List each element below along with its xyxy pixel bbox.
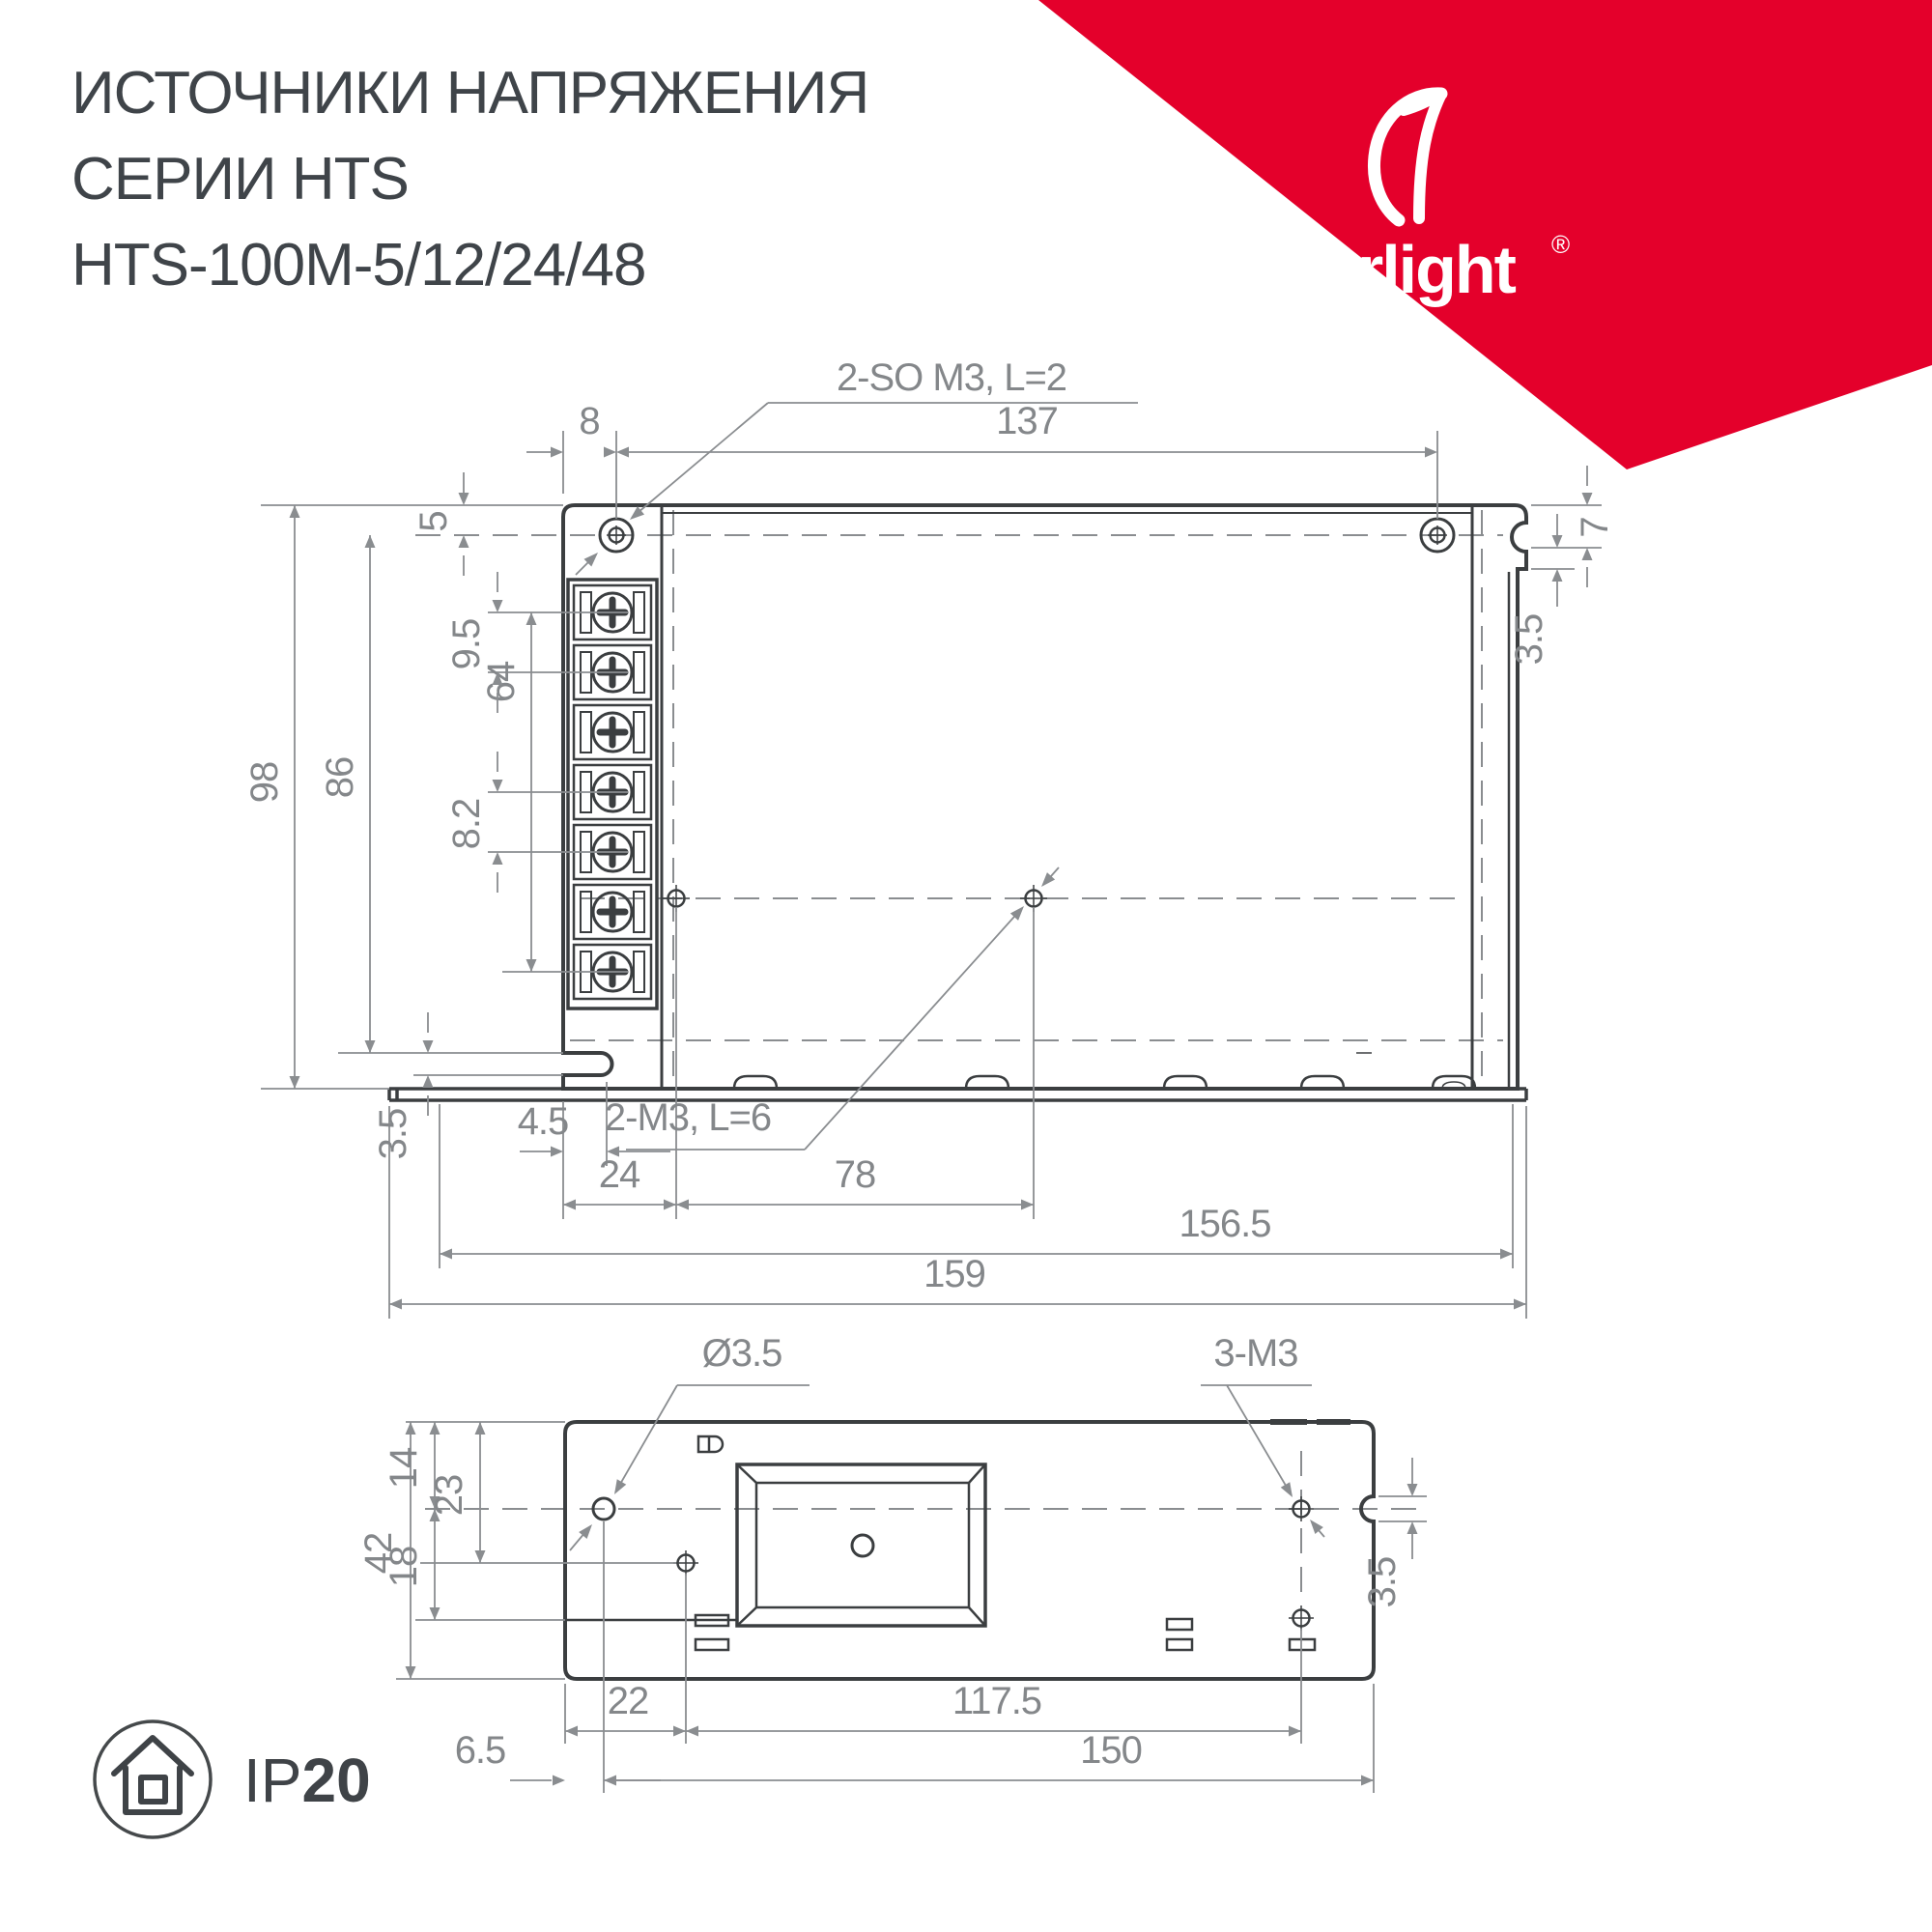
dim-159: 159 [389, 1253, 1526, 1310]
dim-137: 137 [616, 400, 1437, 458]
dim-label-8-2: 8.2 [445, 799, 488, 850]
terminal-cell-6 [574, 885, 651, 939]
callout-label-2-so-m3: 2-SO M3, L=2 [837, 356, 1066, 399]
dim-8: 8 [526, 400, 616, 458]
callout-diameter-3-5: Ø3.5 [570, 1332, 810, 1550]
dim-label-24: 24 [599, 1153, 640, 1196]
dim-label-3-5-bottom: 3.5 [1361, 1557, 1404, 1608]
vent-slots [696, 1615, 1315, 1650]
dim-label-156-5: 156.5 [1179, 1203, 1270, 1245]
dim-label-14: 14 [383, 1447, 425, 1489]
brand-banner: arlight ® [1038, 0, 1932, 469]
dim-label-117-5: 117.5 [952, 1680, 1041, 1722]
dim-5: 5 [412, 472, 469, 576]
ip-value: 20 [301, 1746, 370, 1815]
label-plate [737, 1464, 985, 1626]
ip-badge-icon [95, 1721, 211, 1837]
dim-3-5-bottom-view: 3.5 [1361, 1458, 1418, 1607]
terminal-cell-3 [574, 705, 651, 759]
datasheet-page: ИСТОЧНИКИ НАПРЯЖЕНИЯ СЕРИИ HTS HTS-100M-… [0, 0, 1932, 1932]
callout-label-2-m3: 2-M3, L=6 [605, 1096, 771, 1139]
dim-label-22: 22 [608, 1680, 649, 1722]
ip-label: IP [243, 1746, 301, 1815]
dim-label-7: 7 [1574, 517, 1616, 537]
technical-drawing-canvas: arlight ® [0, 0, 1932, 1932]
dim-label-98: 98 [243, 762, 286, 804]
dim-23: 23 [428, 1422, 486, 1563]
extension-lines-top-view [261, 431, 1602, 1319]
bottom-view-drawing: Ø3.5 3-M3 42 14 [357, 1332, 1427, 1793]
hole-3-m3 [1289, 1496, 1314, 1521]
dim-6-5: 6.5 [455, 1729, 661, 1786]
plate-center-hole [852, 1535, 873, 1556]
ip-rating-badge: IP20 [243, 1745, 371, 1816]
callout-3-m3: 3-M3 [1201, 1332, 1324, 1537]
dim-label-9-5: 9.5 [445, 619, 488, 670]
terminal-block [568, 580, 657, 1009]
dim-78: 78 [676, 1153, 1034, 1210]
dim-label-18: 18 [383, 1547, 425, 1588]
dim-label-86: 86 [319, 757, 361, 799]
dim-label-3-5-right: 3.5 [1508, 614, 1550, 666]
callout-label-3-m3: 3-M3 [1213, 1332, 1297, 1375]
dim-156-5: 156.5 [440, 1203, 1513, 1260]
dim-24: 24 [563, 1153, 676, 1210]
dim-8-2: 8.2 [445, 752, 503, 893]
top-view-drawing: 8 137 2-SO M3, L=2 5 [243, 356, 1616, 1319]
dim-150: 150 [604, 1729, 1374, 1786]
registered-trademark-icon: ® [1551, 230, 1570, 259]
dim-98: 98 [243, 505, 300, 1089]
dim-117-5: 117.5 [686, 1680, 1301, 1737]
callout-label-diameter-3-5: Ø3.5 [702, 1332, 782, 1375]
dim-label-6-5: 6.5 [455, 1729, 506, 1772]
dim-label-8: 8 [579, 400, 599, 442]
dim-label-159: 159 [923, 1253, 985, 1295]
dim-label-150: 150 [1080, 1729, 1142, 1772]
hole-lower-right [1289, 1605, 1314, 1631]
house-icon [114, 1738, 191, 1812]
callout-2-so-m3: 2-SO M3, L=2 [576, 356, 1138, 575]
d-slot [698, 1436, 723, 1452]
dim-label-78: 78 [835, 1153, 876, 1196]
dim-7: 7 [1574, 466, 1616, 587]
dim-label-3-5-left: 3.5 [372, 1109, 414, 1160]
dim-label-137: 137 [996, 400, 1058, 442]
dim-3-5-left: 3.5 [372, 1012, 434, 1159]
dim-label-5: 5 [412, 511, 455, 531]
dim-22: 22 [565, 1680, 686, 1737]
arlight-logo-text: arlight [1321, 232, 1517, 307]
dim-86: 86 [319, 535, 376, 1053]
device-outline-top-view [563, 505, 1526, 1089]
hole-middle-left-bottom-view [673, 1550, 698, 1576]
dim-label-4-5: 4.5 [518, 1100, 569, 1143]
